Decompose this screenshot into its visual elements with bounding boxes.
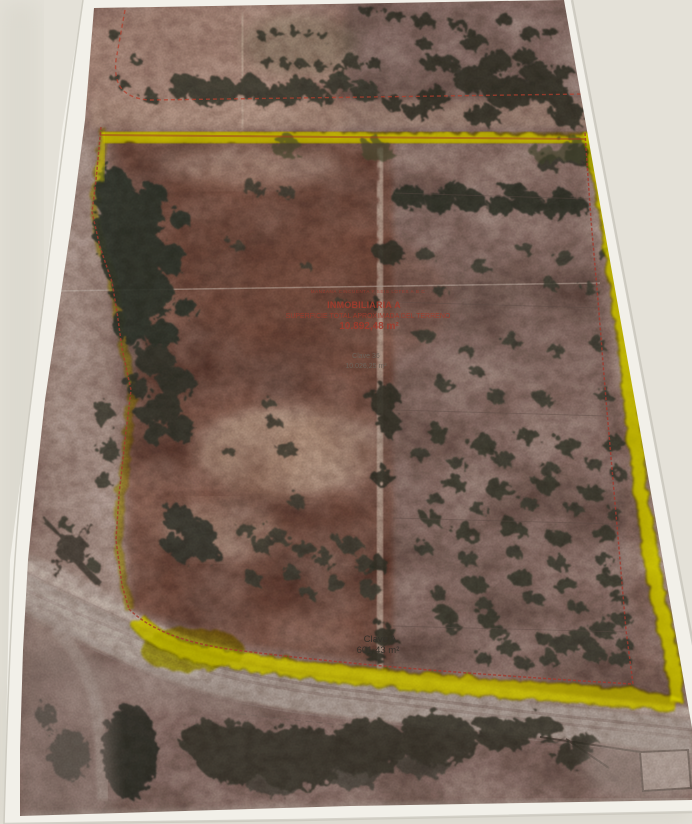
svg-text:MANZANA CINCUENTA Y SEIS LOTES: MANZANA CINCUENTA Y SEIS LOTES A B C	[311, 289, 426, 294]
svg-text:601,43 m²: 601,43 m²	[357, 645, 400, 656]
svg-text:INMOBILIARIA A: INMOBILIARIA A	[327, 300, 401, 310]
svg-text:10.892,48 m²: 10.892,48 m²	[339, 321, 399, 332]
svg-text:10.026,25 m²: 10.026,25 m²	[345, 363, 387, 370]
svg-text:Clave A: Clave A	[364, 634, 397, 645]
svg-text:SUPERFICIE TOTAL APROXIMADA DE: SUPERFICIE TOTAL APROXIMADA DEL TERRENO	[286, 313, 451, 320]
svg-text:Clave 36: Clave 36	[352, 353, 380, 360]
